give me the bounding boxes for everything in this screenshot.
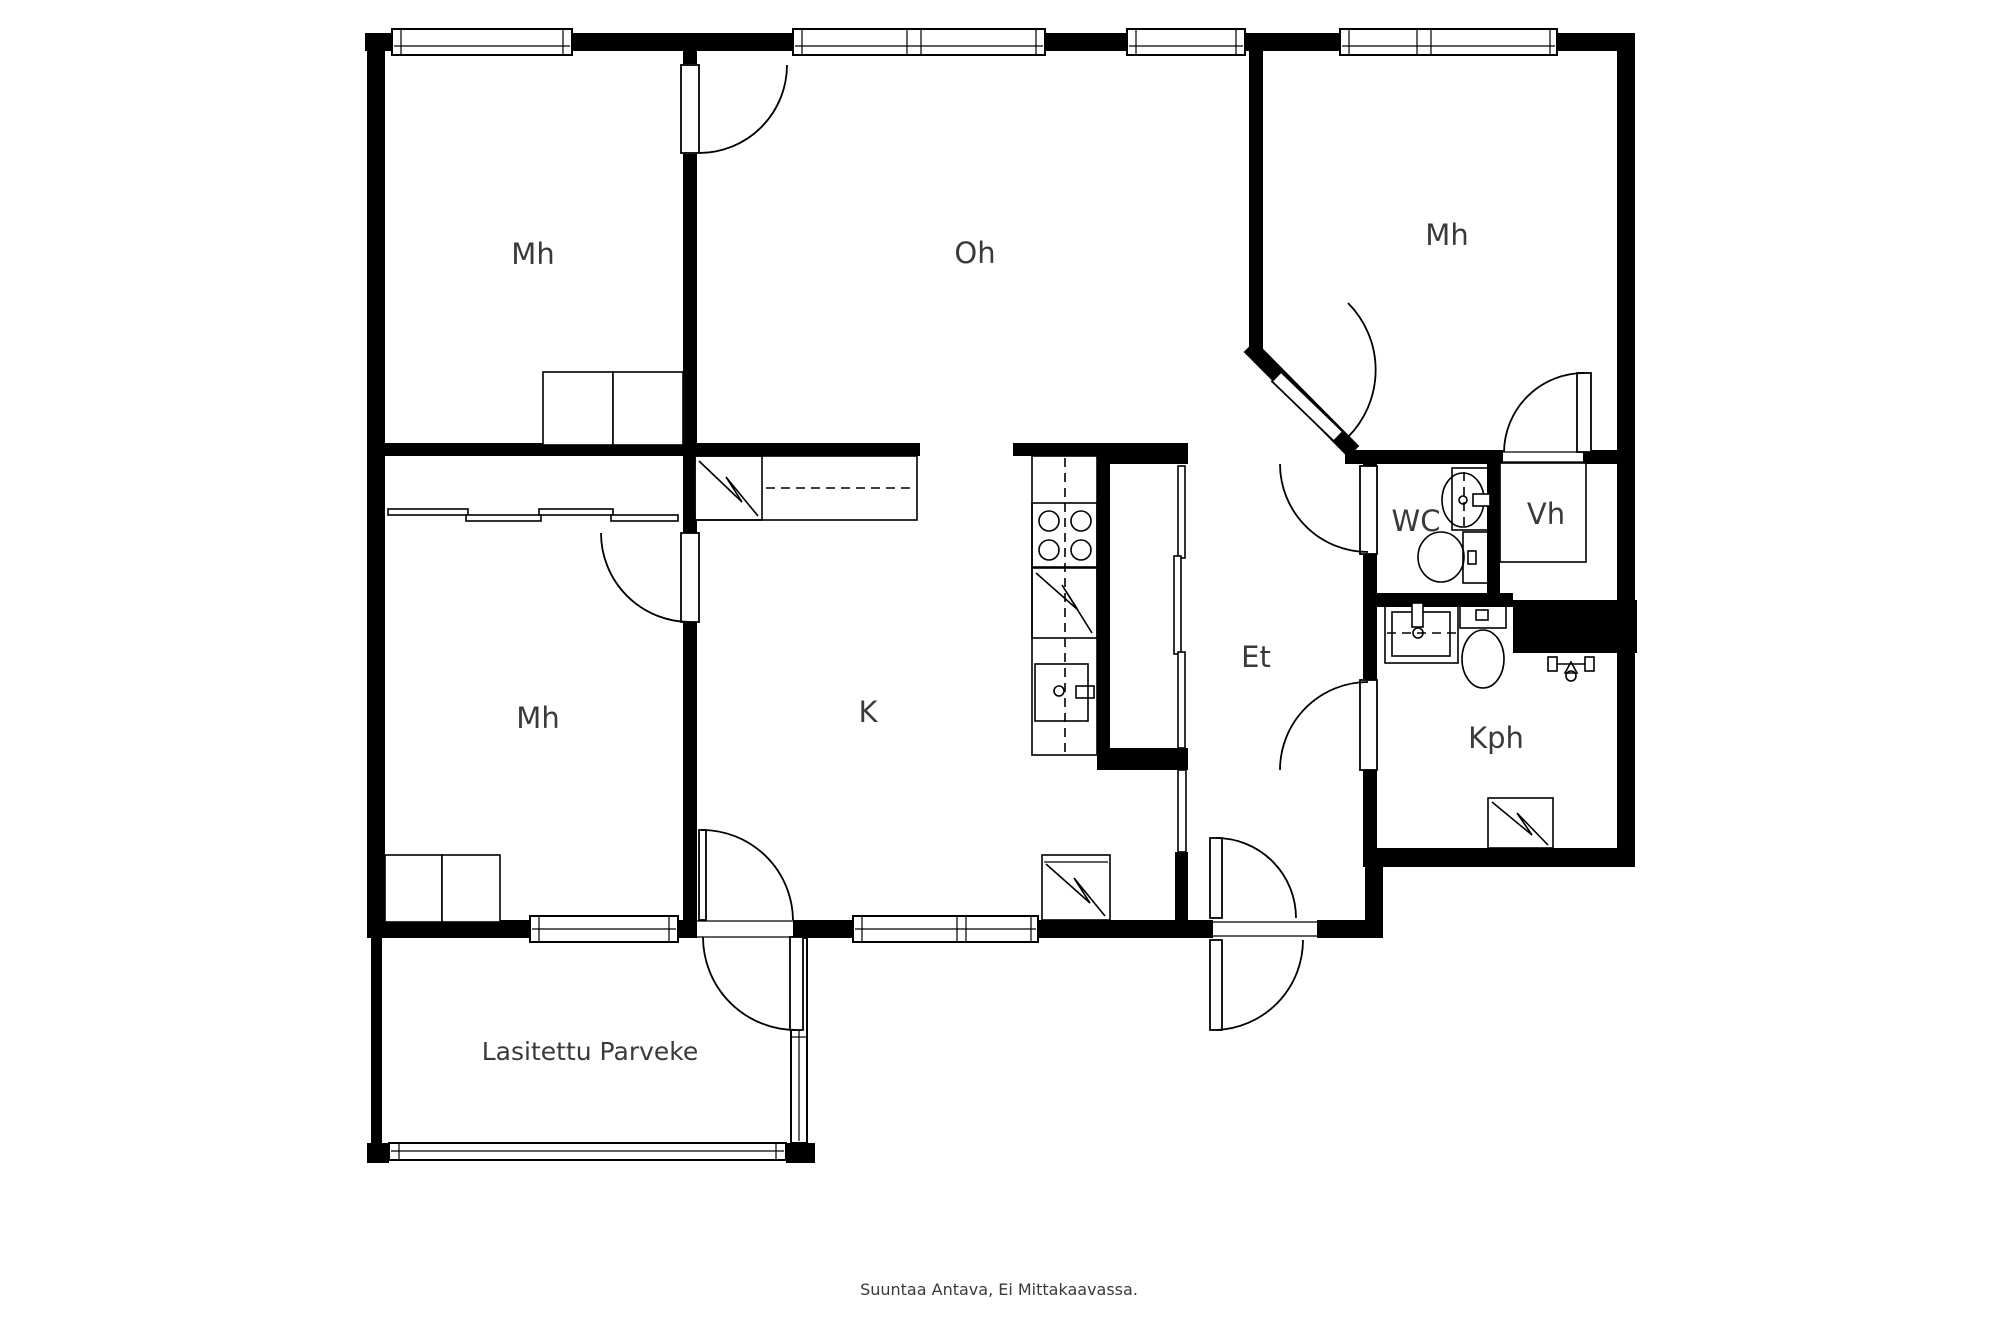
room-label-bathroom: Kph [1468, 721, 1524, 755]
walls [365, 33, 1637, 938]
door-bedroom1 [681, 64, 787, 154]
room-label-glazed-balcony: Lasitettu Parveke [482, 1037, 699, 1066]
window [1127, 29, 1245, 55]
door-swing-arc [702, 830, 793, 920]
kitchen-fixtures [695, 456, 1110, 920]
wall-wc-closet [1487, 464, 1500, 593]
door-leaf [790, 937, 803, 1030]
wardrobe [543, 372, 613, 445]
wardrobe [385, 855, 442, 922]
door-bathroom [1280, 680, 1377, 770]
wall-left [367, 33, 385, 938]
duct-shaft [1513, 600, 1637, 653]
door-leaf [1210, 838, 1222, 918]
window [530, 916, 678, 942]
window [392, 29, 572, 55]
balcony-wall-left [371, 938, 382, 1145]
wall-bottom-bathroom [1377, 848, 1635, 867]
room-label-bedroom-top-right: Mh [1425, 218, 1468, 252]
door-swing-arc [1280, 464, 1368, 552]
wall-closet-left [1097, 443, 1110, 770]
door-swing-arc [1280, 682, 1368, 770]
door-swing-arc [703, 937, 796, 1030]
toilet-icon [1418, 532, 1490, 583]
door-leaf [1360, 680, 1377, 770]
balcony-corner-right [786, 1143, 815, 1163]
wardrobe [613, 372, 683, 445]
washing-machine-icon [1488, 798, 1553, 848]
balcony-corner-left [367, 1143, 389, 1163]
door-leaf [1272, 372, 1343, 441]
sliding-wardrobe-front [388, 509, 678, 521]
door-swing-arc [1216, 940, 1303, 1030]
room-label-bedroom-top-left: Mh [511, 237, 554, 271]
wall-closet-bottom [1097, 748, 1188, 770]
floor-plan-page: Mh Oh Mh Mh K Et WC Vh Kph Lasitettu Par… [0, 0, 2000, 1333]
door-balcony [697, 830, 803, 1030]
door-closet [1503, 373, 1591, 464]
door-bedroom3 [1272, 303, 1376, 441]
wall-bedroom2-kitchen [683, 456, 697, 920]
sink-icon [1385, 603, 1458, 663]
windows-top [392, 29, 1557, 55]
door-swing-arc [601, 533, 690, 622]
wall-closet-cap [1097, 443, 1188, 464]
door-leaf [1577, 373, 1591, 452]
room-label-toilet: WC [1392, 504, 1441, 538]
wall-living-bedroom3 [1249, 51, 1263, 352]
sliding-wardrobe-front [1174, 466, 1185, 748]
floor-plan: Mh Oh Mh Mh K Et WC Vh Kph Lasitettu Par… [0, 0, 2000, 1333]
door-swing-arc [1216, 838, 1296, 918]
appliance-icon [1042, 855, 1110, 920]
door-wc [1280, 464, 1377, 554]
door-swing-arc [1348, 303, 1376, 437]
glass-partition [1178, 770, 1186, 852]
window [793, 29, 1045, 55]
window [1340, 29, 1557, 55]
door-swing-arc [699, 65, 787, 153]
room-label-walk-in-closet: Vh [1527, 497, 1565, 531]
door-leaf [681, 65, 699, 153]
window [853, 916, 1038, 942]
door-leaf [681, 533, 699, 622]
door-leaf [1360, 466, 1377, 554]
footer-note: Suuntaa Antava, Ei Mittakaavassa. [860, 1280, 1138, 1299]
sink-icon [1442, 468, 1490, 530]
door-entrance [1210, 838, 1317, 1030]
room-label-living-room: Oh [954, 236, 995, 270]
room-label-entry-hall: Et [1241, 640, 1271, 674]
wall-kitchen-hall-stub [1175, 852, 1188, 938]
shower-icon [1548, 657, 1594, 681]
door-leaf [699, 830, 706, 920]
room-label-bedroom-mid-left: Mh [516, 701, 559, 735]
door-swing-arc [1504, 373, 1584, 452]
room-label-kitchen: K [858, 695, 878, 729]
door-bedroom2 [601, 533, 699, 622]
balcony-glazing-bottom [389, 1143, 786, 1160]
door-leaf [1210, 940, 1222, 1030]
toilet-icon [1460, 605, 1506, 688]
wardrobe [442, 855, 500, 922]
